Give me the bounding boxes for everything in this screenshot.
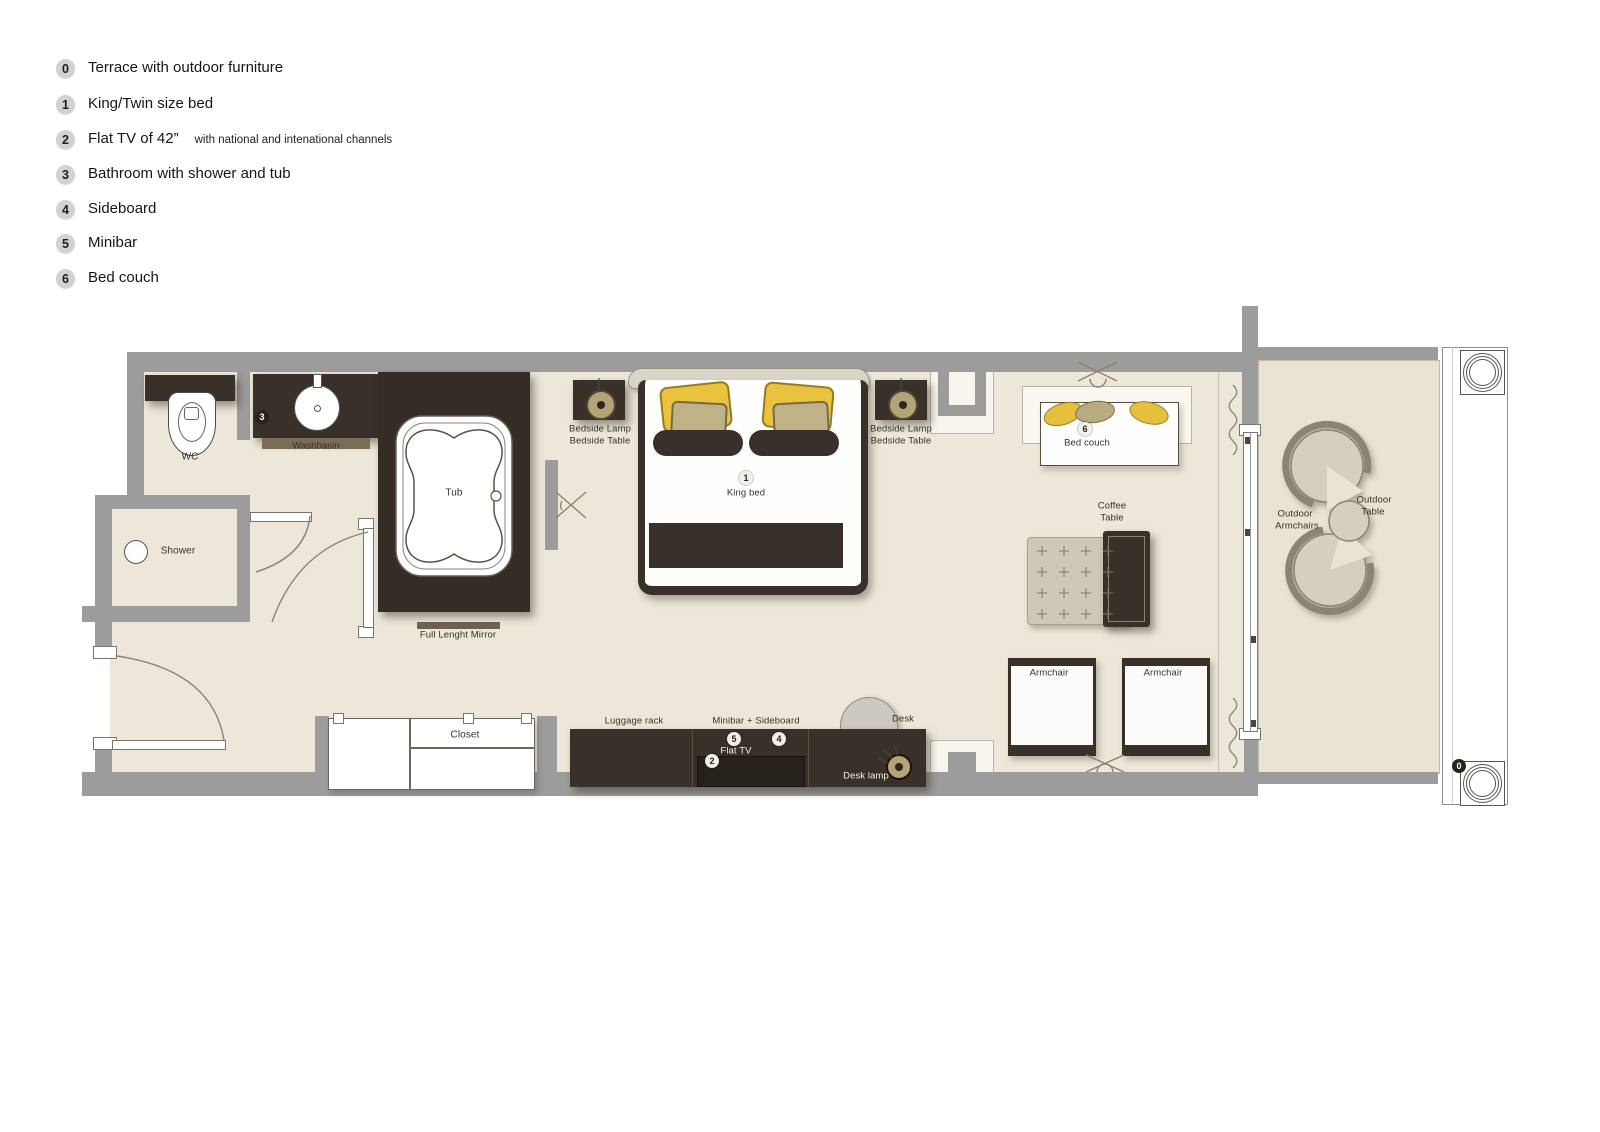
legend-item-2: 2 Flat TV of 42” with national and inten…: [56, 130, 392, 149]
wall-top-stub: [1242, 306, 1258, 432]
legend-label-0: Terrace with outdoor furniture: [88, 59, 283, 76]
label-washbasin: Washbasin: [292, 441, 340, 452]
label-minibar-sideboard: Minibar + Sideboard: [712, 716, 799, 727]
floorplan-page: 0 Terrace with outdoor furniture 1 King/…: [0, 0, 1600, 1132]
closet-pivot-2: [463, 713, 474, 724]
wall-left-upper: [127, 352, 144, 502]
legend-item-4: 4 Sideboard: [56, 200, 156, 219]
legend-badge-0: 0: [56, 59, 75, 78]
legend-item-6: 6 Bed couch: [56, 269, 159, 288]
bolster-right: [749, 430, 839, 456]
legend-item-1: 1 King/Twin size bed: [56, 95, 213, 114]
legend-item-5: 5 Minibar: [56, 234, 137, 253]
wall-wc-divider: [237, 372, 250, 440]
label-desk-lamp: Desk lamp: [843, 771, 889, 782]
label-outdoor-table-2: Table: [1361, 507, 1384, 518]
label-bed-couch: Bed couch: [1064, 438, 1110, 449]
bath-door-leaf: [250, 512, 312, 522]
washbasin-faucet: [313, 374, 322, 388]
sliding-door: [1243, 432, 1258, 732]
badge-sideboard: 4: [772, 732, 786, 746]
planter-top: [1460, 350, 1505, 395]
shower-head: [124, 540, 148, 564]
label-coffee-table: Table: [1100, 513, 1123, 524]
label-bedside-lamp-right: Bedside Lamp: [870, 424, 932, 435]
legend-badge-5: 5: [56, 234, 75, 253]
legend-label-2-suffix: with national and intenational channels: [195, 134, 393, 146]
bedside-lamp-left: [586, 390, 616, 420]
label-coffee: Coffee: [1098, 501, 1126, 512]
bolster-left: [653, 430, 743, 456]
label-desk: Desk: [892, 714, 914, 725]
legend-label-6: Bed couch: [88, 269, 159, 286]
entry-door-leaf: [112, 740, 226, 750]
badge-flat-tv: 2: [705, 754, 719, 768]
legend-badge-4: 4: [56, 200, 75, 219]
badge-terrace: 0: [1452, 759, 1466, 773]
legend-item-3: 3 Bathroom with shower and tub: [56, 165, 291, 184]
legend-label-1: King/Twin size bed: [88, 95, 213, 112]
wall-shower-right: [237, 495, 250, 622]
label-king-bed: King bed: [727, 488, 765, 499]
bed-couch: [1040, 402, 1179, 466]
wall-left-mid: [95, 495, 112, 657]
label-bedside-table-right: Bedside Table: [871, 436, 932, 447]
planter-bottom: [1460, 761, 1505, 806]
bed-blanket: [649, 523, 843, 568]
label-armchair-left: Armchair: [1030, 668, 1069, 679]
wc-toilet: [168, 392, 216, 456]
wall-shower-bottom: [82, 606, 242, 622]
legend-label-5: Minibar: [88, 234, 137, 251]
wall-bath-partition: [545, 460, 558, 550]
terrace-ledge-line: [1452, 347, 1453, 803]
bedside-lamp-right: [888, 390, 918, 420]
legend-label-4: Sideboard: [88, 200, 156, 217]
label-flat-tv: Flat TV: [720, 746, 751, 757]
badge-minibar: 5: [727, 732, 741, 746]
label-closet: Closet: [451, 730, 480, 741]
legend-label-3: Bathroom with shower and tub: [88, 165, 291, 182]
washbasin-sink: [294, 385, 340, 431]
wall-terrace-top: [1258, 347, 1438, 360]
closet-pivot-3: [521, 713, 532, 724]
wall-shower-top: [95, 495, 250, 509]
legend-label-2: Flat TV of 42”: [88, 130, 179, 147]
wall-pier-closet-left: [315, 716, 329, 772]
label-full-length-mirror: Full Lenght Mirror: [420, 630, 496, 641]
legend-item-0: 0 Terrace with outdoor furniture: [56, 59, 283, 78]
wall-pier-closet-right: [537, 716, 557, 772]
badge-king-bed: 1: [739, 471, 753, 485]
legend-badge-2: 2: [56, 130, 75, 149]
full-length-mirror: [417, 622, 500, 629]
couch-pillow-tan: [1074, 398, 1117, 425]
wall-niche-bottom-column: [948, 752, 976, 796]
label-wc: WC: [182, 452, 199, 463]
label-shower: Shower: [161, 546, 196, 557]
label-bedside-lamp-left: Bedside Lamp: [569, 424, 631, 435]
legend-badge-1: 1: [56, 95, 75, 114]
label-outdoor-armchairs-1: Outdoor: [1277, 509, 1312, 520]
curtain-rail-line: [1218, 372, 1219, 772]
legend-badge-6: 6: [56, 269, 75, 288]
entry-door-post-top: [93, 646, 117, 659]
label-luggage-rack: Luggage rack: [605, 716, 664, 727]
coffee-table: [1103, 531, 1150, 627]
label-bedside-table-left: Bedside Table: [570, 436, 631, 447]
label-tub: Tub: [445, 488, 462, 499]
label-armchair-right: Armchair: [1144, 668, 1183, 679]
wall-niche-top-base: [938, 405, 986, 416]
desk-lamp: [886, 754, 912, 780]
corridor-door-leaf: [363, 528, 374, 628]
badge-bathroom: 3: [255, 410, 269, 424]
closet: [328, 718, 535, 790]
wall-terrace-bottom: [1258, 772, 1438, 784]
couch-pillow-yellow-right: [1127, 397, 1171, 428]
badge-bed-couch: 6: [1078, 422, 1092, 436]
label-outdoor-table-1: Outdoor: [1356, 495, 1391, 506]
label-outdoor-armchairs-2: Armchairs: [1275, 521, 1319, 532]
legend-badge-3: 3: [56, 165, 75, 184]
terrace-floor: [1258, 360, 1440, 774]
closet-pivot-1: [333, 713, 344, 724]
